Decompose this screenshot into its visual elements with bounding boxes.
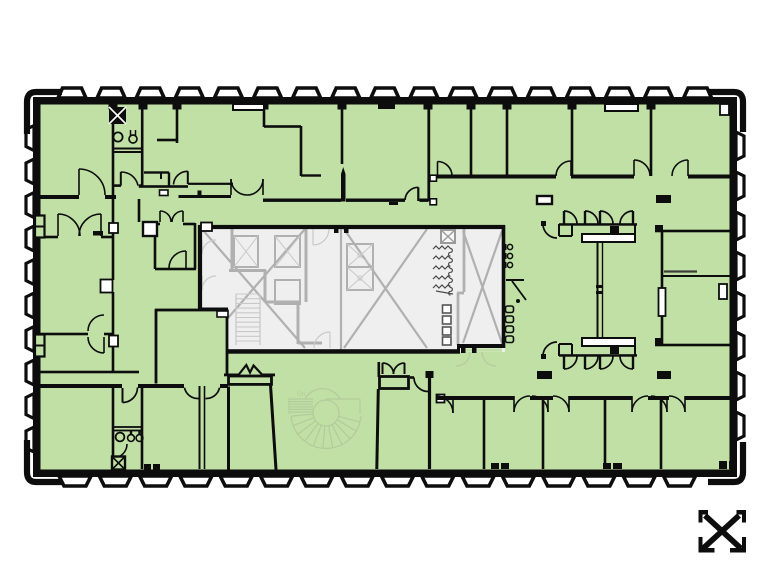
svg-text:Dn: Dn	[297, 391, 306, 398]
